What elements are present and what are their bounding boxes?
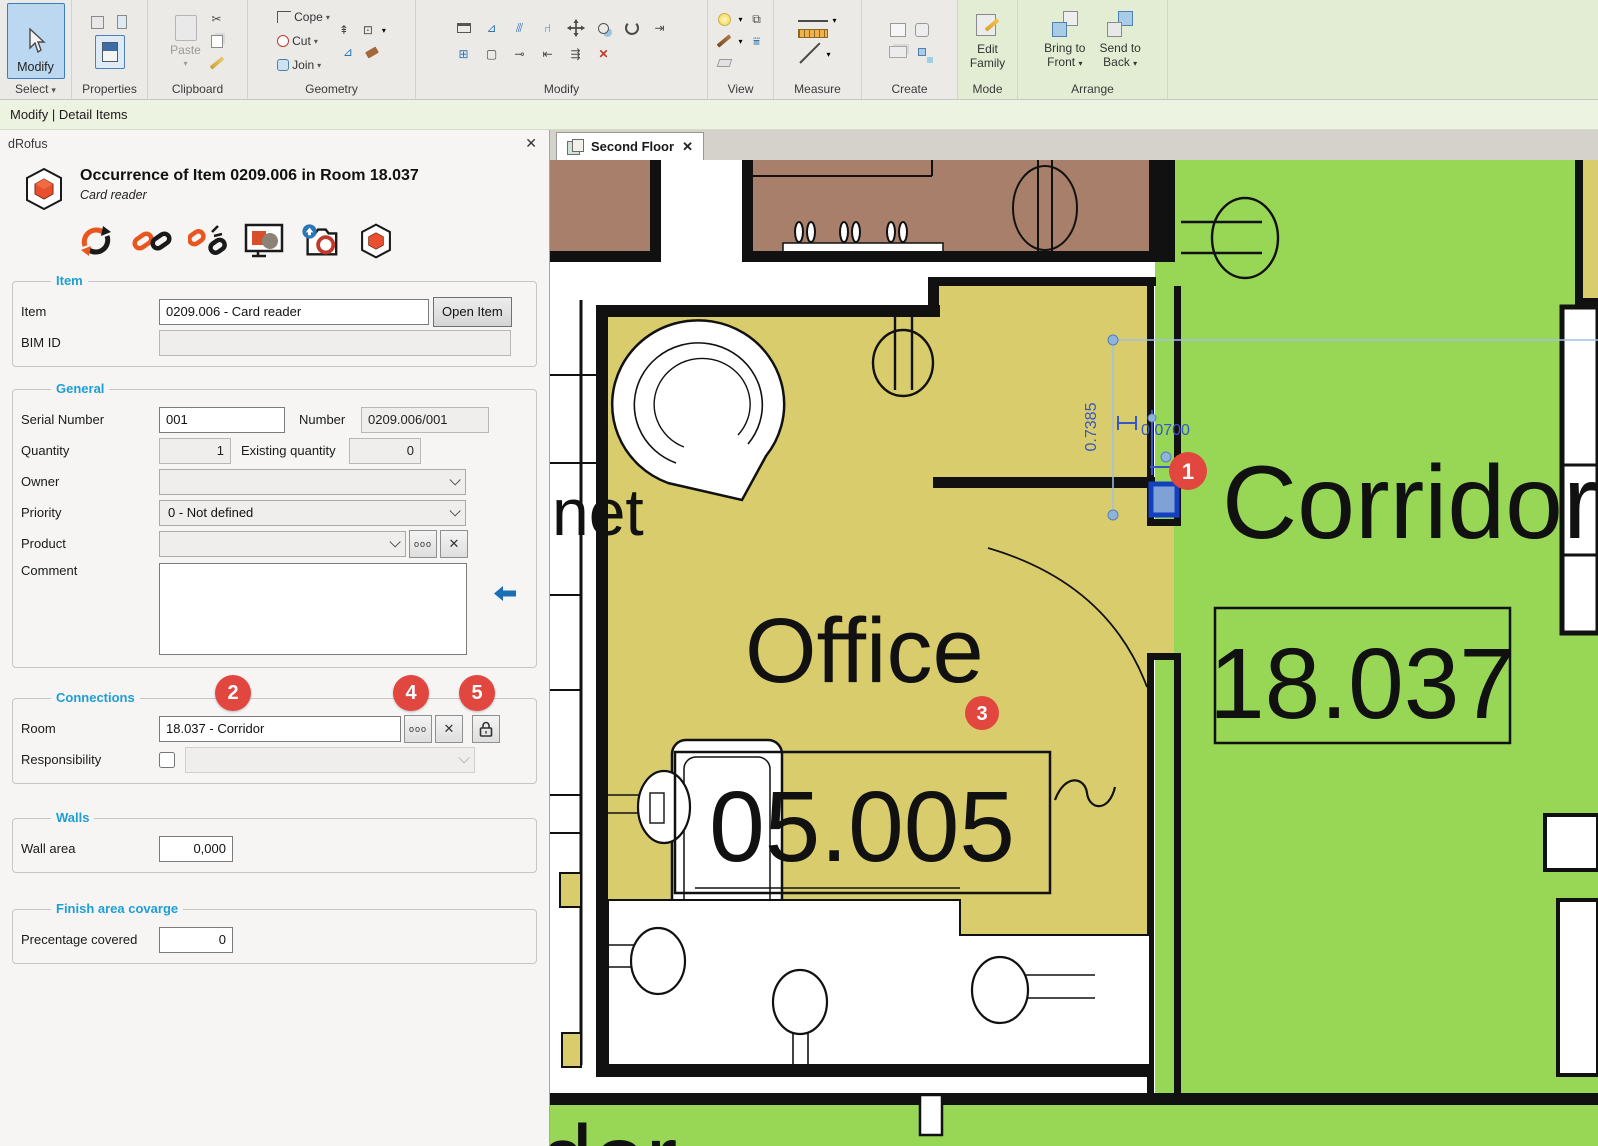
- chevron-down-icon: ▾: [183, 59, 187, 68]
- align-icon[interactable]: [454, 19, 474, 37]
- clipboard-section-label: Clipboard: [172, 82, 223, 96]
- modify-button-label: Modify: [17, 60, 54, 74]
- copy-elements-icon[interactable]: [594, 19, 614, 37]
- cope-button[interactable]: Cope▾: [277, 7, 330, 27]
- lock-icon: [479, 721, 493, 737]
- link-icon[interactable]: [132, 223, 172, 259]
- array-icon[interactable]: ⊞: [454, 45, 474, 63]
- send-to-back-icon: [1107, 11, 1133, 37]
- trim-corner-icon[interactable]: ⇤: [538, 45, 558, 63]
- floorplan-view-icon: [567, 139, 583, 154]
- comment-textarea[interactable]: [159, 563, 467, 655]
- tab-second-floor[interactable]: Second Floor ✕: [556, 132, 704, 160]
- ribbon-section-view: ▾⧉ ▾⩸ View: [708, 0, 774, 99]
- callout-badge-2: 2: [215, 675, 251, 711]
- paste-icon: [175, 15, 197, 41]
- drawing-area: Second Floor ✕: [550, 130, 1598, 1146]
- product-select[interactable]: [159, 531, 406, 557]
- finish-area-group-label: Finish area covarge: [51, 901, 183, 916]
- bim-cube-small-icon[interactable]: [356, 223, 396, 259]
- mode-status-bar: Modify | Detail Items: [0, 100, 1598, 130]
- ribbon-section-measure: ▾ ▾ Measure: [774, 0, 862, 99]
- ribbon-filler: [1168, 0, 1598, 99]
- walls-group-label: Walls: [51, 810, 94, 825]
- chevron-down-icon: ▾: [51, 85, 56, 95]
- connections-group: Connections 2 4 5 Room ooo ✕ Responsibil…: [12, 698, 537, 784]
- door-jamb: [920, 1095, 942, 1135]
- bim-id-label: BIM ID: [21, 335, 159, 350]
- room-brown-left[interactable]: [550, 160, 652, 253]
- bim-id-input: [159, 330, 511, 356]
- responsibility-checkbox[interactable]: [159, 752, 175, 768]
- send-to-back-button[interactable]: Send toBack ▾: [1099, 11, 1140, 71]
- drofus-panel: dRofus ✕ Occurrence of Item 0209.006 in …: [0, 130, 550, 1146]
- family-types-icon[interactable]: [88, 13, 108, 31]
- ribbon-section-arrange: Bring toFront ▾ Send toBack ▾ Arrange: [1018, 0, 1168, 99]
- create-section-label: Create: [891, 82, 927, 96]
- mode-section-label: Mode: [972, 82, 1002, 96]
- wall-area-input[interactable]: [159, 836, 233, 862]
- properties-section-label: Properties: [82, 82, 137, 96]
- quantity-label: Quantity: [21, 443, 159, 458]
- view-section-label: View: [728, 82, 754, 96]
- chevron-down-icon: [449, 474, 460, 485]
- delete-icon[interactable]: ✕: [594, 45, 614, 63]
- room-clear-button[interactable]: ✕: [435, 715, 463, 743]
- responsibility-label: Responsibility: [21, 752, 159, 767]
- priority-select[interactable]: 0 - Not defined: [159, 500, 466, 526]
- serial-number-label: Serial Number: [21, 412, 159, 427]
- callout-badge-1: 1: [1169, 452, 1207, 490]
- demolish-hammer-icon[interactable]: [362, 43, 382, 61]
- bring-to-front-icon: [1052, 11, 1078, 37]
- connections-group-label: Connections: [51, 690, 140, 705]
- occurrence-subtitle: Card reader: [80, 188, 419, 202]
- card-reader-element-selected[interactable]: [1151, 484, 1177, 515]
- room-name-office: Office: [745, 600, 984, 702]
- quantity-input: [159, 438, 231, 464]
- priority-label: Priority: [21, 505, 159, 520]
- join-geometry-button[interactable]: Join▾: [277, 55, 321, 75]
- split-icon[interactable]: ⑁: [538, 19, 558, 37]
- edit-family-button[interactable]: EditFamily: [970, 12, 1005, 70]
- mirror-icon[interactable]: ⫻: [510, 19, 530, 37]
- percentage-covered-input[interactable]: [159, 927, 233, 953]
- mode-status-text: Modify | Detail Items: [10, 107, 128, 122]
- unjoin-icon[interactable]: ⊡: [358, 21, 378, 39]
- svg-text:3: 3: [976, 703, 987, 725]
- offset-icon[interactable]: ⊿: [482, 19, 502, 37]
- product-clear-button[interactable]: ✕: [440, 530, 468, 558]
- move-icon[interactable]: [566, 19, 586, 37]
- wall: [1575, 160, 1583, 305]
- sync-icon[interactable]: [76, 223, 116, 259]
- left-room-patch: [560, 873, 581, 907]
- room-number-05005: 05.005: [709, 771, 1015, 883]
- create-parts-icon[interactable]: [888, 43, 908, 61]
- override-graphics-icon[interactable]: ⩸: [747, 32, 767, 50]
- owner-select[interactable]: [159, 469, 466, 495]
- chevron-down-icon: ▾: [326, 13, 330, 22]
- beam-systems-icon[interactable]: ⇞: [334, 21, 354, 39]
- product-browse-button[interactable]: ooo: [409, 530, 437, 558]
- room-browse-button[interactable]: ooo: [404, 715, 432, 743]
- bring-to-front-button[interactable]: Bring toFront ▾: [1044, 11, 1085, 71]
- cursor-icon: [25, 28, 47, 54]
- pin-icon[interactable]: ⊸: [510, 45, 530, 63]
- room-input[interactable]: [159, 716, 401, 742]
- product-label: Product: [21, 536, 159, 551]
- drofus-titlebar: dRofus ✕: [0, 130, 549, 157]
- bim-cube-icon: [24, 167, 64, 211]
- corridor-lower-band[interactable]: [550, 1105, 1598, 1146]
- wall-joins-icon[interactable]: ⊿: [338, 43, 358, 61]
- cut-geometry-button[interactable]: Cut▾: [277, 31, 318, 51]
- unlink-icon[interactable]: [188, 223, 228, 259]
- create-group-icon[interactable]: [912, 43, 932, 61]
- room-name-partial-left: net: [552, 475, 644, 549]
- edit-family-icon: [973, 12, 1003, 38]
- create-similar-icon[interactable]: [912, 21, 932, 39]
- trim-multi-icon[interactable]: ⇶: [566, 45, 586, 63]
- select-dropdown[interactable]: Select▾: [0, 82, 71, 99]
- serial-number-input[interactable]: [159, 407, 285, 433]
- measure-ruler-icon[interactable]: [798, 29, 828, 38]
- chevron-down-icon: [449, 505, 460, 516]
- properties-palette-icon[interactable]: [95, 35, 125, 69]
- owner-label: Owner: [21, 474, 159, 489]
- general-group-label: General: [51, 381, 109, 396]
- chevron-down-icon: ▾: [382, 26, 386, 35]
- drofus-window-title: dRofus: [8, 137, 48, 151]
- modify-section-label: Modify: [544, 82, 579, 96]
- camera-upload-icon[interactable]: [300, 223, 340, 259]
- item-label: Item: [21, 304, 159, 319]
- linework-brush-icon[interactable]: [714, 32, 734, 50]
- room-top-right[interactable]: [1582, 160, 1598, 302]
- tab-title: Second Floor: [591, 139, 674, 154]
- chevron-down-icon: ▾: [317, 61, 321, 70]
- display-icon[interactable]: [244, 223, 284, 259]
- occurrence-title: Occurrence of Item 0209.006 in Room 18.0…: [80, 167, 419, 185]
- percentage-covered-label: Precentage covered: [21, 932, 159, 947]
- ribbon-section-select: Modify Select▾: [0, 0, 72, 99]
- item-group: Item Item Open Item BIM ID: [12, 281, 537, 367]
- ribbon-section-create: Create: [862, 0, 958, 99]
- displace-icon[interactable]: ⧉: [747, 10, 767, 28]
- floor-plan-svg: 05.005 Office: [550, 160, 1598, 1146]
- room-label: Room: [21, 721, 159, 736]
- wall-area-label: Wall area: [21, 841, 159, 856]
- hide-icon[interactable]: [714, 54, 734, 72]
- open-item-button[interactable]: Open Item: [433, 297, 512, 327]
- back-arrow-icon[interactable]: [494, 586, 516, 601]
- copy-icon[interactable]: [207, 32, 227, 50]
- ribbon-section-modify: ⊿ ⫻ ⑁ ⇥ ⊞ ▢ ⊸ ⇤ ⇶ ✕ Modify: [416, 0, 708, 99]
- scale-icon[interactable]: ▢: [482, 45, 502, 63]
- ribbon-section-geometry: Cope▾ Cut▾ Join▾ ⇞ ⊡ ▾ ⊿: [248, 0, 416, 99]
- item-input[interactable]: [159, 299, 429, 325]
- arrange-section-label: Arrange: [1071, 82, 1114, 96]
- drofus-header: Occurrence of Item 0209.006 in Room 18.0…: [0, 157, 549, 211]
- room-number-18037: 18.037: [1209, 628, 1515, 740]
- floor-plan-view[interactable]: 05.005 Office: [550, 160, 1598, 1146]
- dimension-horizontal-value[interactable]: 0.0700: [1141, 422, 1190, 439]
- reveal-hidden-icon[interactable]: [714, 10, 734, 28]
- existing-quantity-input: [349, 438, 421, 464]
- dimension-vertical-value[interactable]: 0.7385: [1083, 402, 1100, 451]
- modify-tool-button[interactable]: Modify: [7, 3, 65, 79]
- view-tab-bar: Second Floor ✕: [550, 130, 1598, 160]
- callout-badge-4: 4: [393, 675, 429, 711]
- existing-quantity-label: Existing quantity: [241, 443, 349, 458]
- chevron-down-icon: ▾: [314, 37, 318, 46]
- finish-area-group: Finish area covarge Precentage covered: [12, 909, 537, 964]
- callout-badge-5: 5: [459, 675, 495, 711]
- svg-text:1: 1: [1182, 459, 1194, 484]
- close-icon[interactable]: ✕: [525, 135, 537, 152]
- general-group: General Serial Number Number Quantity Ex…: [12, 389, 537, 668]
- ribbon-section-mode: EditFamily Mode: [958, 0, 1018, 99]
- chevron-down-icon: [389, 536, 400, 547]
- measure-between-icon[interactable]: [798, 42, 822, 66]
- item-group-label: Item: [51, 273, 88, 288]
- legend-component-icon[interactable]: [888, 21, 908, 39]
- comment-label: Comment: [21, 563, 159, 578]
- geometry-section-label: Geometry: [305, 82, 358, 96]
- callout-badge-3: 3: [965, 696, 999, 730]
- ribbon: Modify Select▾ Properties Paste: [0, 0, 1598, 100]
- match-properties-icon[interactable]: [207, 54, 227, 72]
- cut-to-clipboard-icon[interactable]: ✂: [207, 10, 227, 28]
- type-properties-icon[interactable]: [112, 13, 132, 31]
- room-lock-button[interactable]: [472, 715, 500, 743]
- ribbon-section-properties: Properties: [72, 0, 148, 99]
- room-name-partial-bottom: dor: [550, 1106, 677, 1146]
- trim-icon[interactable]: ⇥: [650, 19, 670, 37]
- left-room-patch: [562, 1033, 581, 1067]
- chevron-down-icon: [458, 752, 469, 763]
- responsibility-select: [185, 747, 475, 773]
- room-name-corridor: Corridor: [1222, 445, 1598, 561]
- measure-section-label: Measure: [794, 82, 841, 96]
- walls-group: Walls Wall area: [12, 818, 537, 873]
- number-input: [361, 407, 489, 433]
- drofus-toolbar: [0, 211, 549, 259]
- paste-button[interactable]: Paste ▾: [169, 12, 203, 70]
- rotate-icon[interactable]: [622, 19, 642, 37]
- ribbon-section-clipboard: Paste ▾ ✂ Clipboard: [148, 0, 248, 99]
- number-label: Number: [299, 412, 361, 427]
- tab-close-icon[interactable]: ✕: [682, 139, 693, 155]
